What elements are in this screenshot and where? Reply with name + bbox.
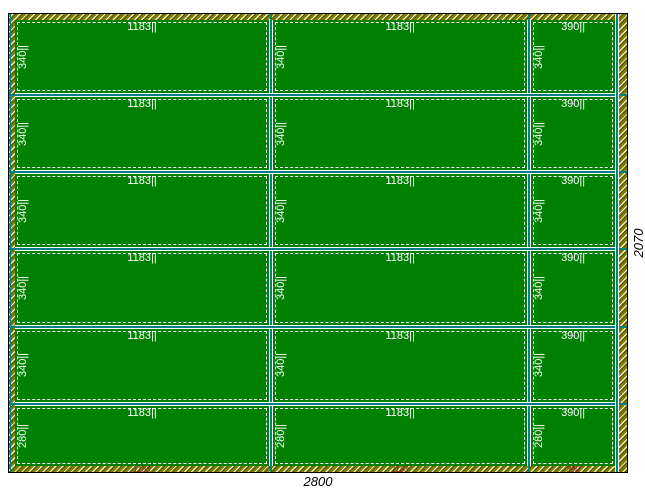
panel[interactable]: 1183||340||	[15, 329, 269, 402]
panel[interactable]: 1183||340||	[15, 251, 269, 324]
panel-width-label: 1183||	[273, 407, 527, 420]
panel-height-label: 340||	[275, 276, 287, 300]
panel[interactable]: 1183||340||	[273, 97, 527, 170]
panel-height-label: 280||	[17, 424, 29, 448]
panel[interactable]: 390||340||	[531, 20, 615, 93]
panel-width-label: 390||	[531, 98, 615, 111]
panel-height-label: 340||	[275, 122, 287, 146]
vertical-cut-line	[269, 20, 273, 466]
panel[interactable]: 1183||340||	[273, 251, 527, 324]
panel-width-label: 1183||	[273, 98, 527, 111]
left-edge-trim-cut-line	[10, 14, 11, 472]
panel-width-label: 1183||	[273, 252, 527, 265]
panel-width-label: 1183||	[273, 330, 527, 343]
panel[interactable]: 1183||340||	[273, 20, 527, 93]
panel[interactable]: 390||280||	[531, 406, 615, 466]
panel-height-label: 280||	[275, 424, 287, 448]
panel-height-label: 340||	[17, 45, 29, 69]
panel-height-label: 340||	[533, 276, 545, 300]
column-cut-dimension: 1183	[391, 466, 408, 474]
panel-height-label: 340||	[533, 199, 545, 223]
panel[interactable]: 1183||280||	[15, 406, 269, 466]
panel-width-label: 1183||	[273, 21, 527, 34]
panel[interactable]: 390||340||	[531, 174, 615, 247]
panel-height-label: 340||	[17, 199, 29, 223]
panel[interactable]: 390||340||	[531, 97, 615, 170]
panel-width-label: 1183||	[15, 21, 269, 34]
panel-width-label: 1183||	[15, 175, 269, 188]
panel[interactable]: 390||340||	[531, 251, 615, 324]
column-cut-dimension: 1183	[133, 466, 150, 474]
panel-width-label: 1183||	[15, 330, 269, 343]
panel-grid: 1183||340||1183||340||390||340||1183||34…	[15, 20, 615, 466]
sheet: 1183||340||1183||340||390||340||1183||34…	[8, 13, 628, 473]
horizontal-cut-line	[15, 93, 615, 97]
panel-height-label: 340||	[17, 353, 29, 377]
panel[interactable]: 1183||340||	[273, 329, 527, 402]
sheet-width-dimension: 2800	[304, 474, 333, 489]
column-cut-dimension: 390	[566, 466, 579, 474]
panel-width-label: 390||	[531, 330, 615, 343]
panel[interactable]: 390||340||	[531, 329, 615, 402]
panel-width-label: 390||	[531, 21, 615, 34]
panel[interactable]: 1183||340||	[15, 20, 269, 93]
panel-width-label: 390||	[531, 407, 615, 420]
panel[interactable]: 1183||340||	[273, 174, 527, 247]
cutting-layout-canvas: 1183||340||1183||340||390||340||1183||34…	[0, 0, 645, 489]
sheet-height-dimension: 2070	[631, 229, 645, 258]
panel-width-label: 390||	[531, 175, 615, 188]
panel-height-label: 340||	[533, 353, 545, 377]
panel-height-label: 340||	[533, 122, 545, 146]
panel-height-label: 340||	[275, 199, 287, 223]
panel-height-label: 340||	[17, 122, 29, 146]
panel-width-label: 1183||	[273, 175, 527, 188]
right-edge-cut-line	[616, 14, 618, 472]
panel[interactable]: 1183||340||	[15, 174, 269, 247]
panel-height-label: 340||	[17, 276, 29, 300]
panel[interactable]: 1183||280||	[273, 406, 527, 466]
panel-width-label: 1183||	[15, 98, 269, 111]
panel-height-label: 280||	[533, 424, 545, 448]
horizontal-cut-line	[15, 247, 615, 251]
panel-height-label: 340||	[533, 45, 545, 69]
horizontal-cut-line	[15, 170, 615, 174]
vertical-cut-line	[527, 20, 531, 466]
panel-width-label: 1183||	[15, 252, 269, 265]
panel[interactable]: 1183||340||	[15, 97, 269, 170]
panel-height-label: 340||	[275, 353, 287, 377]
panel-height-label: 340||	[275, 45, 287, 69]
horizontal-cut-line	[15, 402, 615, 406]
panel-width-label: 390||	[531, 252, 615, 265]
horizontal-cut-line	[15, 325, 615, 329]
panel-width-label: 1183||	[15, 407, 269, 420]
